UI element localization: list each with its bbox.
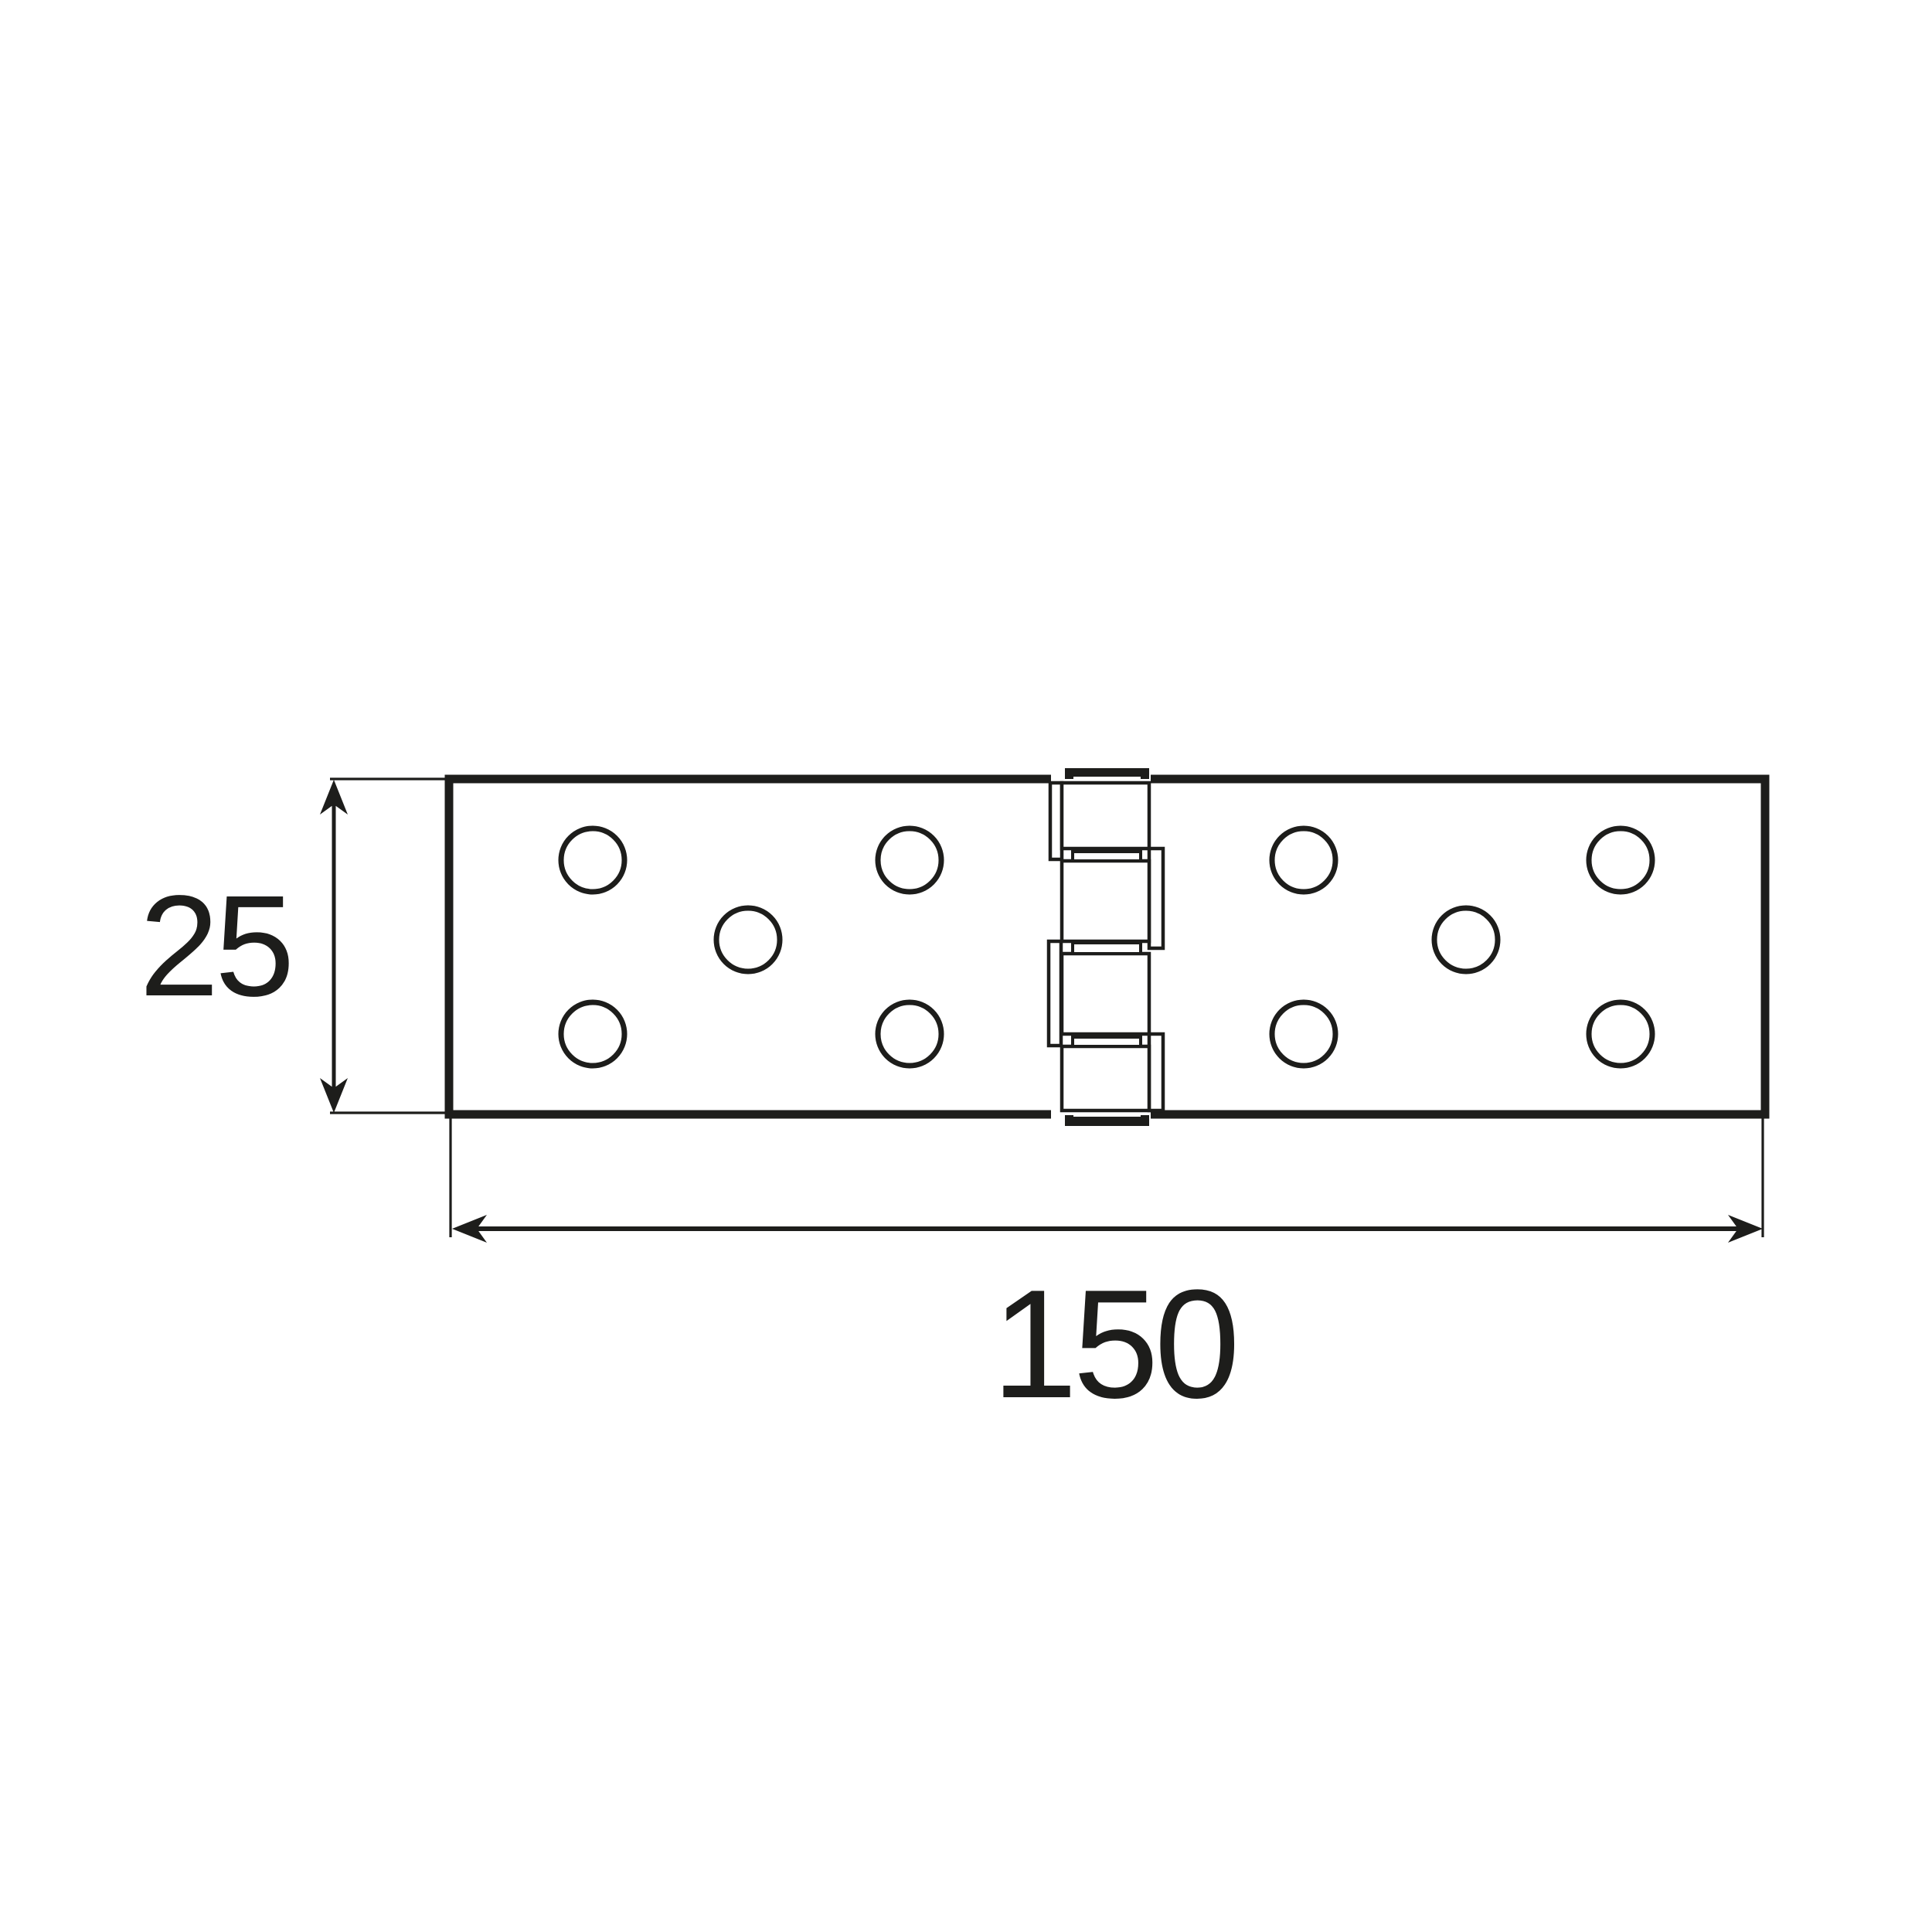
knuckle-segment-2 — [1062, 861, 1149, 941]
knuckle-joint-2 — [1073, 943, 1141, 954]
drawing-canvas: 25 150 — [0, 0, 1932, 1932]
left-wrap-strip-2 — [1049, 941, 1061, 1046]
height-dimension: 25 — [139, 779, 445, 1113]
hinge-barrel — [1049, 762, 1163, 1128]
knuckle-segment-1 — [1062, 783, 1149, 849]
width-dimension-label: 150 — [992, 1258, 1236, 1430]
knuckle-segment-3 — [1062, 954, 1149, 1034]
right-wrap-strip-2 — [1149, 1034, 1163, 1111]
knuckle-joint-1 — [1073, 852, 1141, 861]
knuckle-joint-3 — [1073, 1037, 1141, 1046]
width-dimension: 150 — [451, 1118, 1763, 1430]
knuckle-segment-4 — [1062, 1046, 1149, 1111]
right-wrap-strip-1 — [1149, 849, 1163, 948]
hinge-technical-drawing: 25 150 — [0, 0, 1932, 1932]
height-dimension-label: 25 — [139, 866, 291, 1026]
bottom-cap-bar — [1065, 1115, 1149, 1126]
